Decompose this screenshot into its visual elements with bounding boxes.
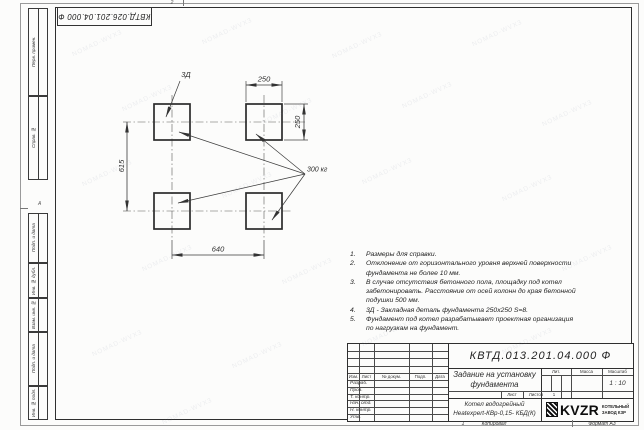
load-label: 300 кг (307, 167, 328, 174)
dim-615-left: 615 (117, 159, 126, 172)
document-title: Задание на установку фундамента (449, 368, 540, 391)
col-header-docnum: № докум. (374, 373, 409, 380)
dim-250-right: 250 (293, 115, 302, 129)
centerlines (123, 95, 307, 240)
note-text: В случае отсутствия бетонного пола, площ… (366, 278, 578, 306)
note-text: Фундамент под котел разрабатывает проект… (366, 315, 578, 334)
note-number: 5. (350, 315, 366, 334)
row-nachotd: Нач. отд. (350, 401, 372, 406)
note-item: 3.В случае отсутствия бетонного пола, пл… (350, 278, 582, 306)
kvzr-subtext-line1: КОТЕЛЬНЫЙ (602, 404, 629, 409)
col-header-podp: Подп. (409, 373, 432, 380)
kvzr-logo-icon (546, 402, 558, 417)
embedded-detail-label: 3Д (181, 70, 191, 79)
row-razrab: Разраб. (350, 381, 367, 386)
dim-640-bottom: 640 (212, 245, 225, 254)
scale-header: Масштаб (602, 368, 633, 375)
row-prov: Пров. (350, 388, 363, 393)
divider (432, 344, 433, 421)
note-text: Размеры для справки. (366, 250, 578, 259)
row-nkontr: Н. контр. (350, 408, 372, 413)
organization-cell: KVZR КОТЕЛЬНЫЙ ЗАВОД КЗР (541, 398, 633, 421)
divider (348, 366, 448, 367)
kvzr-logo-subtext: КОТЕЛЬНЫЙ ЗАВОД КЗР (602, 404, 629, 415)
col-header-izm: Изм. (348, 373, 359, 380)
sheets-value: 1 (548, 391, 560, 398)
footer-format: Формат А3 (572, 420, 632, 427)
sheet-label: Лист (501, 391, 523, 398)
note-text: Отклонение от горизонтального уровня вер… (366, 259, 578, 278)
document-number: КВТД.013.201.04.000 Ф (448, 344, 633, 368)
note-text: 3Д - Закладная деталь фундамента 250х250… (366, 306, 578, 315)
row-utv: Утв. (350, 415, 361, 420)
leader-lines (166, 81, 305, 220)
col-header-data: Дата (432, 373, 448, 380)
scale-value: 1 : 10 (602, 375, 633, 391)
note-number: 4. (350, 306, 366, 315)
sheets-label: Листов (524, 391, 548, 398)
title-block: Изм. Лист № докум. Подп. Дата Разраб. Пр… (347, 343, 634, 422)
divider (374, 344, 375, 421)
kvzr-subtext-line2: ЗАВОД КЗР (602, 410, 629, 415)
notes-list: 1.Размеры для справки. 2.Отклонение от г… (350, 250, 582, 334)
kvzr-logo-text: KVZR (560, 402, 599, 418)
mass-header: Масса (571, 368, 602, 375)
divider (348, 414, 448, 415)
divider (561, 375, 562, 398)
divider (551, 375, 552, 391)
divider (348, 358, 448, 359)
drawing-labels: 250 250 615 640 3Д 300 кг (117, 70, 328, 254)
extension-lines (172, 81, 308, 259)
divider (348, 351, 448, 352)
divider (348, 387, 448, 388)
col-header-list: Лист (359, 373, 374, 380)
lit-header: Лит. (541, 368, 571, 375)
dim-250-top: 250 (257, 75, 271, 84)
product-name: Котел водогрейный Heatexpert-КВр-0,15- К… (449, 398, 540, 421)
drawing-sheet: 2 А КВТД.026.201.04.000 Ф Перв. примен. … (0, 0, 644, 430)
note-item: 4.3Д - Закладная деталь фундамента 250х2… (350, 306, 582, 315)
note-number: 1. (350, 250, 366, 259)
divider (409, 344, 410, 421)
note-item: 5.Фундамент под котел разрабатывает прое… (350, 315, 582, 334)
note-number: 3. (350, 278, 366, 306)
row-tkontr: Т. контр. (350, 395, 371, 400)
foundation-pads (154, 104, 282, 229)
note-item: 2.Отклонение от горизонтального уровня в… (350, 259, 582, 278)
note-number: 2. (350, 259, 366, 278)
footer-copied-by: Копировал (466, 420, 522, 427)
note-item: 1.Размеры для справки. (350, 250, 582, 259)
